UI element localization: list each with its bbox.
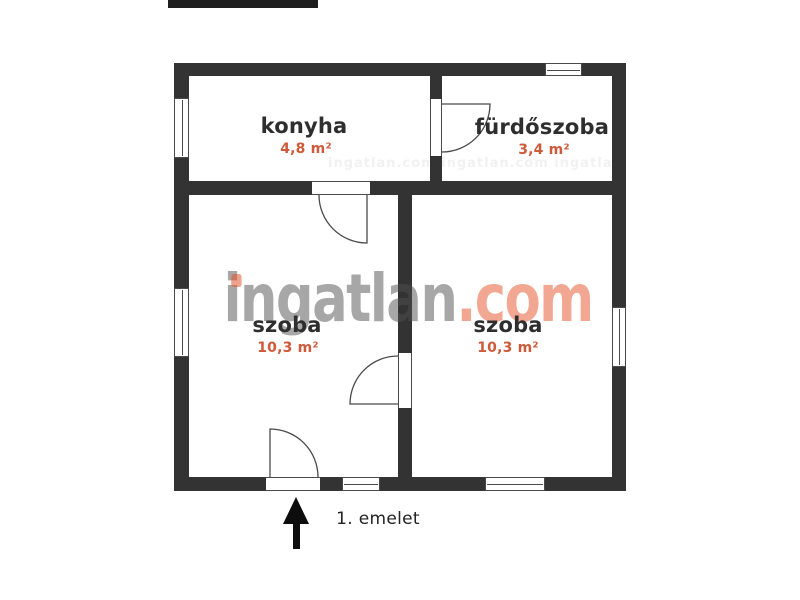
window-bottom-left (342, 477, 380, 491)
door-opening-bathroom (430, 99, 442, 156)
watermark-tile: ingatlan.com ingatlan.com ingatlan.com i… (328, 156, 618, 172)
window-left-kitchen (174, 98, 189, 158)
floor-label: 1. emelet (336, 509, 420, 529)
window-bottom-right (485, 477, 545, 491)
room-name-szoba-right: szoba (473, 313, 542, 337)
floor-plan-image: ingatlan.com ingatlan.com ingatlan.com i… (0, 0, 800, 600)
room-area-konyha: 4,8 m² (280, 141, 332, 157)
door-opening-entrance (266, 477, 320, 491)
room-name-furdoszoba: fürdőszoba (475, 115, 609, 139)
window-top-bathroom (545, 63, 582, 76)
room-name-szoba-left: szoba (252, 313, 321, 337)
door-opening-room (398, 353, 412, 408)
room-area-furdoszoba: 3,4 m² (518, 142, 570, 158)
watermark: ingatlan.com (88, 266, 728, 332)
room-area-szoba-right: 10,3 m² (477, 340, 539, 356)
room-area-szoba-left: 10,3 m² (257, 340, 319, 356)
door-opening-kitchen (312, 181, 370, 195)
room-name-konyha: konyha (261, 114, 348, 138)
entrance-arrow-shaft (293, 523, 300, 549)
door-swing-kitchen-icon (319, 195, 367, 243)
door-swing-room-icon (350, 356, 398, 404)
watermark-i-dot-icon (231, 274, 241, 287)
door-swing-entrance-icon (270, 429, 318, 477)
top-crop-bar (168, 0, 318, 8)
entrance-arrow-icon (283, 497, 309, 524)
